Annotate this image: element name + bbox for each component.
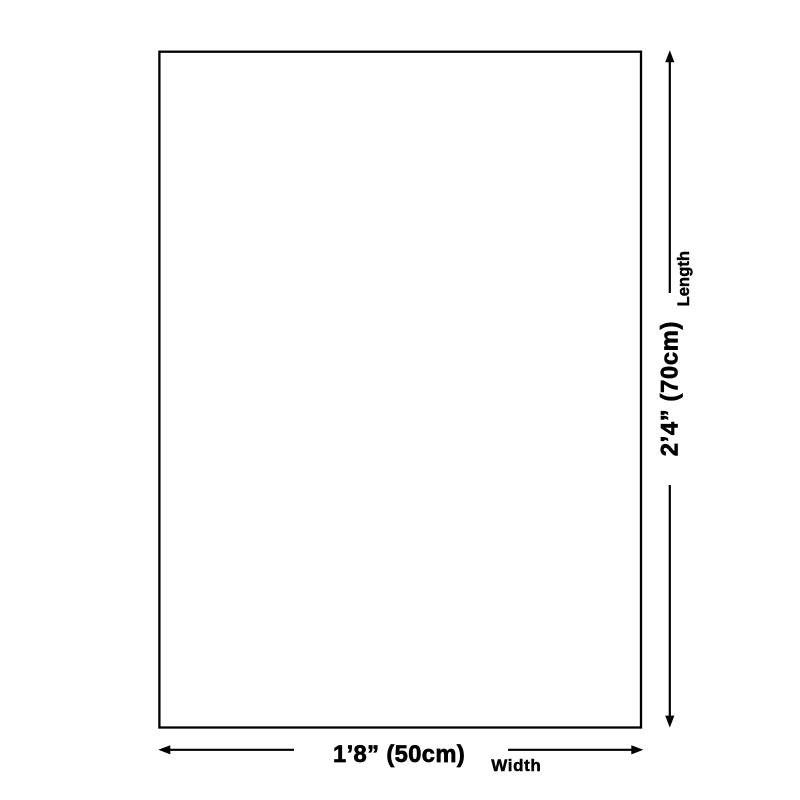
svg-text:Length: Length	[675, 251, 693, 307]
svg-text:Width: Width	[491, 756, 541, 775]
svg-text:2’4” (70cm): 2’4” (70cm)	[657, 321, 683, 456]
svg-text:1’8” (50cm): 1’8” (50cm)	[333, 742, 465, 768]
